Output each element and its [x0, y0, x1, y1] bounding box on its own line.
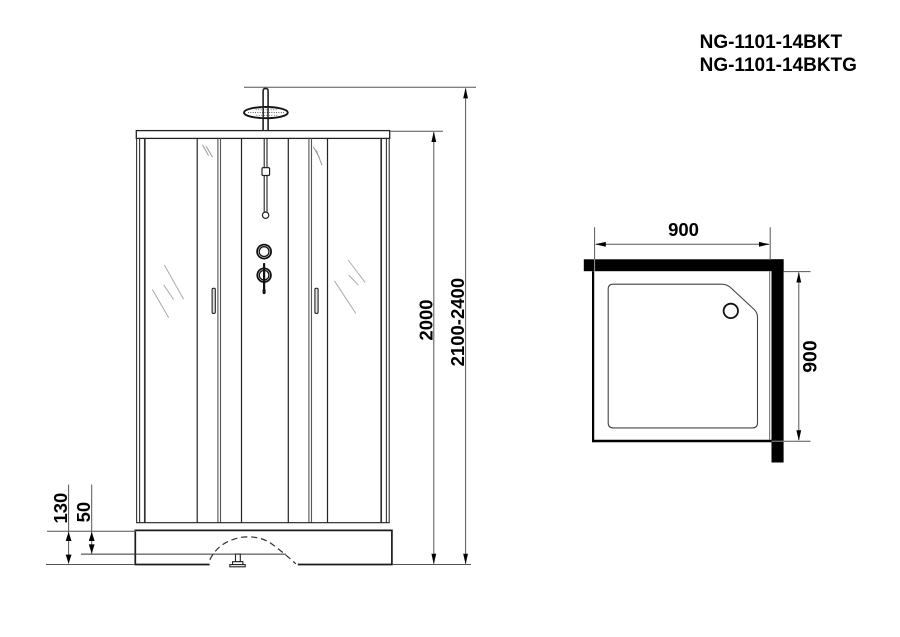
svg-text:NG-1101-14BKT: NG-1101-14BKT: [700, 32, 843, 53]
svg-text:130: 130: [50, 493, 71, 524]
svg-text:900: 900: [800, 340, 822, 373]
svg-text:2100-2400: 2100-2400: [447, 278, 468, 366]
svg-text:900: 900: [668, 219, 699, 240]
svg-text:50: 50: [73, 502, 94, 523]
svg-text:2000: 2000: [415, 299, 436, 340]
svg-text:NG-1101-14BKTG: NG-1101-14BKTG: [700, 55, 857, 76]
